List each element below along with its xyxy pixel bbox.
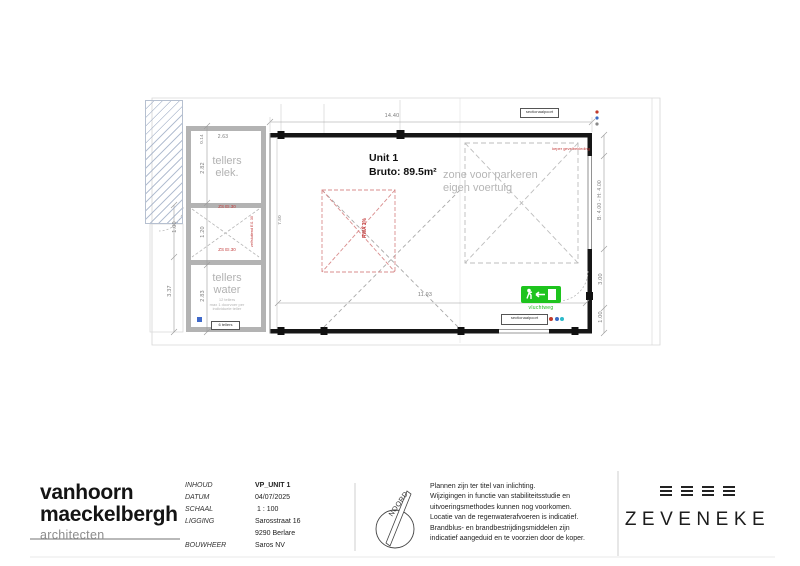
fire-door-label-bottom: ZS EI.30 [212, 248, 242, 253]
field-value-bouwheer: Saros NV [255, 542, 285, 549]
firm-name-line2: maeckelbergh [40, 504, 178, 526]
rwa-label: RWA 3% [362, 206, 368, 250]
emergency-exit-sign [521, 286, 561, 303]
dim-left-283: 2.83 [200, 280, 206, 312]
neighbour-hatch-area [145, 100, 183, 224]
floor-plan-sheet: tellers elek. tellers water 12 tellers m… [0, 0, 800, 566]
room-label: tellers [199, 272, 255, 284]
dim-left-282: 2.82 [200, 152, 206, 184]
room-label: elek. [199, 167, 255, 179]
dim-right-opening: B: 4.00 - H: 4.00 [597, 154, 603, 246]
room-label: tellers [199, 155, 255, 167]
dim-right-mid: 3.00 [598, 261, 604, 297]
firm-logo: vanhoorn maeckelbergh architecten [40, 482, 178, 543]
room-label: water [199, 284, 255, 296]
exit-label: vluchtweg [516, 305, 566, 311]
dim-right-low: 1.00 [598, 304, 604, 330]
field-value-inhoud: VP_UNIT 1 [255, 482, 290, 489]
firm-subtitle: architecten [40, 528, 178, 543]
brand-name: ZEVENEKE [620, 509, 775, 531]
field-value-ligging-city: 9290 Berlare [255, 530, 295, 537]
title-block: vanhoorn maeckelbergh architecten INHOUD… [0, 470, 800, 566]
dim-left-263: 2.63 [210, 134, 236, 140]
firm-name-line1: vanhoorn [40, 482, 178, 504]
tellers-water-note: 12 tellers max 1 doorvoer per individuel… [199, 298, 255, 312]
dim-farleft-337: 3.37 [167, 270, 173, 312]
door-tag-bottom: sectionaalpoort [501, 314, 548, 325]
unit-name: Unit 1 [369, 151, 437, 165]
field-value-schaal: 1 : 100 [257, 506, 278, 513]
field-label-datum: DATUM [185, 494, 209, 501]
unit-info: Unit 1 Bruto: 89.5m² [369, 151, 437, 179]
field-label-schaal: SCHAAL [185, 506, 213, 513]
fire-door-label-top: ZS EI.30 [212, 205, 242, 210]
disclaimer: Plannen zijn ter titel van inlichting. W… [430, 482, 585, 544]
dim-bottom: 11.93 [405, 292, 445, 298]
door-tag-top: sectionaalpoort [520, 108, 559, 118]
dim-left-120: 1.20 [200, 217, 206, 247]
red-annotation: keper gevelbekleding [541, 147, 601, 152]
tellers-count-tag: 6 tellers [211, 321, 240, 330]
brand-bars-icon [620, 478, 775, 500]
field-value-datum: 04/07/2025 [255, 494, 290, 501]
fire-door-side-note: zelfsluitend EI1 30 [250, 207, 255, 247]
project-brand-logo: ZEVENEKE [620, 478, 775, 531]
unit-area: Bruto: 89.5m² [369, 165, 437, 179]
north-arrow-label: NOORD [388, 491, 410, 518]
parking-zone-label: zone voor parkeren eigen voertuig [443, 169, 538, 195]
field-label-inhoud: INHOUD [185, 482, 213, 489]
room-tellers-water: tellers water [199, 272, 255, 296]
room-tellers-elek: tellers elek. [199, 155, 255, 179]
field-label-bouwheer: BOUWHEER [185, 542, 226, 549]
dim-interior-height: 7.50 [277, 208, 282, 232]
dim-top: 14.40 [372, 113, 412, 119]
field-value-ligging-street: Sarosstraat 16 [255, 518, 301, 525]
dim-left-014: 0.14 [199, 130, 204, 148]
exit-pictogram-icon [521, 286, 561, 303]
dim-farleft-100: 1.00 [172, 214, 178, 240]
field-label-ligging: LIGGING [185, 518, 214, 525]
